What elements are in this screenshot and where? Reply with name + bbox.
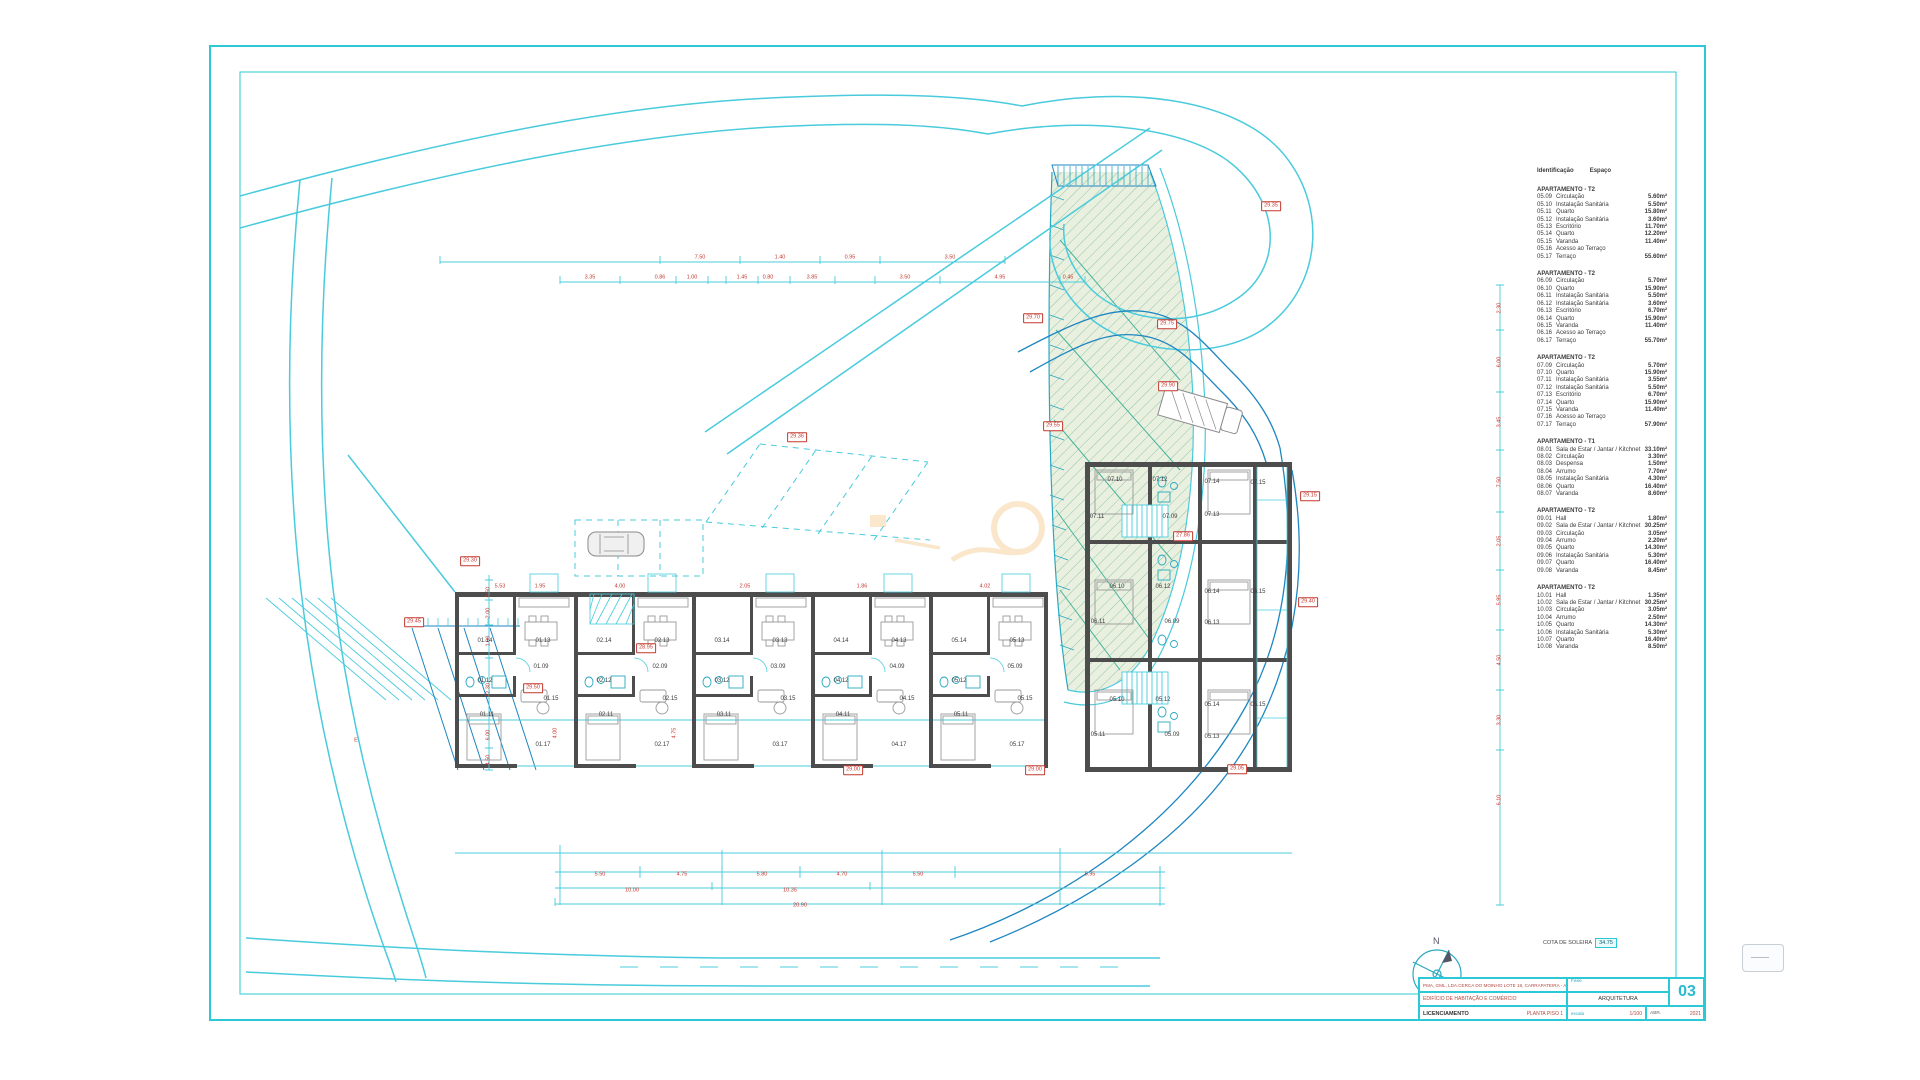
logo-watermark: [870, 504, 1042, 560]
legend-row: 09.08Varanda8.45m²: [1537, 568, 1667, 575]
dimension-value: 5.80: [757, 872, 768, 878]
room-label: 04.17: [891, 742, 906, 748]
dimension-value: 4.70: [837, 872, 848, 878]
elevation-badge: 29.90: [1158, 381, 1178, 391]
cota-de-soleira: COTA DE SOLEIRA 34.75: [1543, 938, 1617, 948]
room-label: 05.14: [951, 638, 966, 644]
legend-section: APARTAMENTO - T210.01Hall1.35m²10.02Sala…: [1537, 585, 1667, 652]
legend-row: 08.06Quarto16.40m²: [1537, 484, 1667, 491]
dimension-value: 3.50: [900, 275, 911, 281]
legend-row: 09.02Sala de Estar / Jantar / Kitchnet30…: [1537, 523, 1667, 530]
legend-row: 09.03Circulação3.05m²: [1537, 531, 1667, 538]
legend-section: APARTAMENTO - T209.01Hall1.80m²09.02Sala…: [1537, 508, 1667, 575]
legend-row: 05.11Quarto15.80m²: [1537, 209, 1667, 216]
dimension-value: 6.10: [1497, 795, 1503, 806]
legend-row: 05.14Quarto12.20m²: [1537, 231, 1667, 238]
legend-section-title: APARTAMENTO - T2: [1537, 585, 1667, 592]
dimension-value: 3.35: [585, 275, 596, 281]
room-label: 06.09: [1164, 619, 1179, 625]
room-schedule-legend: Identificação Espaço APARTAMENTO - T205.…: [1537, 168, 1667, 662]
dimension-value: 4.50: [486, 755, 492, 766]
legend-header: Identificação Espaço: [1537, 168, 1667, 174]
legend-row: 06.16Acesso ao Terraço: [1537, 330, 1667, 337]
legend-row: 08.07Varanda8.60m²: [1537, 491, 1667, 498]
room-label: 01.15: [543, 696, 558, 702]
dimension-value: 2.05: [740, 584, 751, 590]
legend-row: 06.09Circulação5.70m²: [1537, 278, 1667, 285]
room-label: 07.15: [1250, 480, 1265, 486]
elevation-badge: 29.70: [1023, 313, 1043, 323]
drawing-name: PLANTA PISO 1: [1527, 1011, 1563, 1017]
legend-section: APARTAMENTO - T206.09Circulação5.70m²06.…: [1537, 271, 1667, 345]
elevation-badge: 29.00: [843, 765, 863, 775]
room-label: 06.10: [1109, 584, 1124, 590]
legend-row: 08.01Sala de Estar / Jantar / Kitchnet33…: [1537, 447, 1667, 454]
room-label: 06.13: [1204, 620, 1219, 626]
legend-row: 05.12Instalação Sanitária3.60m²: [1537, 217, 1667, 224]
fase-label: Fase: [1571, 979, 1582, 984]
room-label: 02.13: [654, 638, 669, 644]
elevation-badge: 27.86: [1173, 531, 1193, 541]
specialty: ARQUITETURA: [1598, 996, 1637, 1002]
room-label: 02.09: [652, 664, 667, 670]
elevation-badge: 29.05: [1227, 764, 1247, 774]
scale-value: 1/100: [1629, 1011, 1642, 1017]
room-label: 02.11: [599, 712, 614, 718]
room-label: 05.14: [1204, 702, 1219, 708]
room-label: 07.11: [1090, 514, 1105, 520]
cota-label: COTA DE SOLEIRA: [1543, 940, 1592, 946]
dimension-value: 5.53: [495, 584, 506, 590]
dimension-value: 7.50: [695, 255, 706, 261]
room-label: 03.11: [717, 712, 732, 718]
room-label: 05.13: [1204, 734, 1219, 740]
car-sedan: [588, 532, 644, 556]
room-label: 05.17: [1009, 742, 1024, 748]
room-label: 05.09: [1164, 732, 1179, 738]
room-label: 05.10: [1109, 697, 1124, 703]
dimension-lines: [440, 256, 1504, 906]
dimension-value: 2.00: [486, 608, 492, 619]
room-label: 01.11: [480, 712, 495, 718]
legend-row: 10.08Varanda8.50m²: [1537, 644, 1667, 651]
dimension-value: E: [354, 738, 358, 744]
room-label: 01.17: [535, 742, 550, 748]
legend-row: 07.13Escritório6.70m²: [1537, 392, 1667, 399]
elevation-badge: 29.75: [1157, 319, 1177, 329]
room-label: 02.15: [662, 696, 677, 702]
room-label: 03.14: [714, 638, 729, 644]
legend-row: 06.11Instalação Sanitária5.50m²: [1537, 293, 1667, 300]
dimension-value: 4.75: [677, 872, 688, 878]
elevation-badge: 29.50: [523, 683, 543, 693]
building-row-units: [455, 574, 1048, 768]
north-label: N: [1433, 936, 1440, 946]
room-label: 04.13: [891, 638, 906, 644]
elevation-badge: 29.40: [1298, 597, 1318, 607]
room-label: 04.12: [833, 678, 848, 684]
dimension-value: 1.45: [737, 275, 748, 281]
legend-section: APARTAMENTO - T108.01Sala de Estar / Jan…: [1537, 439, 1667, 498]
drawing-sheet: Identificação Espaço APARTAMENTO - T205.…: [0, 0, 1920, 1080]
legend-header-id: Identificação: [1537, 168, 1574, 174]
dimension-value: 5.95: [1497, 595, 1503, 606]
dimension-value: 3.85: [807, 275, 818, 281]
dimension-value: 1.86: [857, 584, 868, 590]
dimension-value: 1.40: [775, 255, 786, 261]
legend-row: 07.17Terraço57.90m²: [1537, 422, 1667, 429]
legend-row: 10.01Hall1.35m²: [1537, 593, 1667, 600]
date-month: ABR.: [1650, 1011, 1661, 1016]
dimension-value: 4.95: [995, 275, 1006, 281]
legend-row: 09.07Quarto16.40m²: [1537, 560, 1667, 567]
legend-row: 07.15Varanda11.40m²: [1537, 407, 1667, 414]
room-label: 04.09: [889, 664, 904, 670]
room-label: 06.14: [1204, 589, 1219, 595]
legend-row: 05.09Circulação5.60m²: [1537, 194, 1667, 201]
legend-section-title: APARTAMENTO - T1: [1537, 439, 1667, 446]
project-location: CERCA DO MOINHO LOTE 18, CARRAPATEIRA - …: [1458, 983, 1567, 988]
dimension-value: 1.00: [687, 275, 698, 281]
legend-row: 09.05Quarto14.30m²: [1537, 545, 1667, 552]
scale-box: [1742, 944, 1784, 972]
legend-row: 07.14Quarto15.90m²: [1537, 400, 1667, 407]
room-label: 05.11: [1091, 732, 1106, 738]
dimension-value: 0.86: [655, 275, 666, 281]
dimension-value: 4.75: [672, 728, 678, 739]
dimension-value: 5.50: [913, 872, 924, 878]
legend-row: 06.12Instalação Sanitária3.60m²: [1537, 301, 1667, 308]
room-label: 05.12: [1155, 697, 1170, 703]
dimension-value: 12.30: [486, 683, 492, 697]
legend-row: 10.05Quarto14.30m²: [1537, 622, 1667, 629]
elevation-badge: 29.30: [460, 556, 480, 566]
legend-row: 10.03Circulação3.05m²: [1537, 607, 1667, 614]
dimension-value: 6.00: [1497, 357, 1503, 368]
room-label: 04.11: [836, 712, 851, 718]
room-label: 06.11: [1091, 619, 1106, 625]
room-label: 05.12: [951, 678, 966, 684]
legend-section-title: APARTAMENTO - T2: [1537, 508, 1667, 515]
elevation-badge: 28.95: [636, 643, 656, 653]
legend-row: 08.05Instalação Sanitária4.30m²: [1537, 476, 1667, 483]
legend-row: 05.16Acesso ao Terraço: [1537, 246, 1667, 253]
dimension-value: 2.05: [1497, 536, 1503, 547]
date-year: 2021: [1690, 1011, 1701, 1017]
elevation-badge: 29.15: [1300, 491, 1320, 501]
legend-row: 10.04Arrumo2.50m²: [1537, 615, 1667, 622]
sheet-frame: [210, 46, 1705, 1020]
room-label: 05.13: [1009, 638, 1024, 644]
dimension-value: 0.95: [845, 255, 856, 261]
scale-label: escala: [1571, 1011, 1584, 1016]
dimension-value: 1.90: [486, 636, 492, 647]
dimension-value: 20.90: [793, 903, 807, 909]
dimension-value: 5.50: [595, 872, 606, 878]
dimension-value: 4.02: [980, 584, 991, 590]
legend-row: 06.17Terraço55.70m²: [1537, 338, 1667, 345]
room-label: 05.15: [1250, 702, 1265, 708]
dimension-value: 0.45: [1063, 275, 1074, 281]
room-label: 02.14: [596, 638, 611, 644]
room-label: 03.12: [714, 678, 729, 684]
room-label: 03.13: [772, 638, 787, 644]
room-label: 07.09: [1162, 514, 1177, 520]
dimension-value: 3.30: [1497, 715, 1503, 726]
room-label: 02.17: [654, 742, 669, 748]
legend-row: 06.15Varanda11.40m²: [1537, 323, 1667, 330]
legend-header-space: Espaço: [1590, 168, 1611, 174]
room-label: 01.09: [533, 664, 548, 670]
room-label: 07.10: [1107, 477, 1122, 483]
dimension-value: 2.30: [1497, 303, 1503, 314]
room-label: 07.14: [1204, 479, 1219, 485]
phase: LICENCIAMENTO: [1423, 1011, 1469, 1017]
dimension-value: 1.95: [535, 584, 546, 590]
dimension-value: 4.00: [615, 584, 626, 590]
room-label: 03.17: [772, 742, 787, 748]
legend-row: 05.15Varanda11.40m²: [1537, 239, 1667, 246]
legend-row: 07.09Circulação5.70m²: [1537, 363, 1667, 370]
dimension-value: 7.50: [1497, 477, 1503, 488]
elevation-badge: 29.00: [1025, 765, 1045, 775]
room-label: 05.09: [1007, 664, 1022, 670]
legend-row: 06.13Escritório6.70m²: [1537, 308, 1667, 315]
room-label: 06.12: [1155, 584, 1170, 590]
legend-row: 05.17Terraço55.60m²: [1537, 254, 1667, 261]
dimension-value: 0.50: [486, 587, 492, 598]
legend-section: APARTAMENTO - T207.09Circulação5.70m²07.…: [1537, 355, 1667, 429]
dimension-value: 10.35: [783, 888, 797, 894]
room-label: 05.15: [1017, 696, 1032, 702]
room-label: 03.09: [770, 664, 785, 670]
elevation-badge: 29.35: [1261, 201, 1281, 211]
room-label: 01.13: [535, 638, 550, 644]
legend-row: 06.14Quarto15.90m²: [1537, 316, 1667, 323]
room-label: 06.15: [1250, 589, 1265, 595]
room-label: 04.15: [899, 696, 914, 702]
project-title: EDIFÍCIO DE HABITAÇÃO E COMÉRCIO: [1423, 996, 1517, 1002]
elevation-badge: 29.45: [404, 617, 424, 627]
dimension-value: 4.00: [553, 728, 559, 739]
dimension-value: 3.45: [1497, 417, 1503, 428]
dimension-value: 0.80: [763, 275, 774, 281]
room-label: 03.15: [780, 696, 795, 702]
sheet-number: 03: [1669, 978, 1705, 1006]
dimension-value: 10.00: [625, 888, 639, 894]
title-block: PMA, GML, LDA. CERCA DO MOINHO LOTE 18, …: [1418, 977, 1704, 1020]
dimension-value: 5.95: [1085, 872, 1096, 878]
legend-section-title: APARTAMENTO - T2: [1537, 355, 1667, 362]
room-label: 04.14: [833, 638, 848, 644]
dimension-value: 4.50: [1497, 655, 1503, 666]
legend-row: 10.06Instalação Sanitária5.30m²: [1537, 630, 1667, 637]
dimension-value: 3.50: [945, 255, 956, 261]
company-name: PMA, GML, LDA.: [1423, 983, 1458, 988]
room-label: 05.11: [954, 712, 969, 718]
legend-row: 08.03Despensa1.50m²: [1537, 461, 1667, 468]
dimension-value: 6.00: [486, 730, 492, 741]
legend-row: 07.16Acesso ao Terraço: [1537, 414, 1667, 421]
room-label: 07.12: [1152, 477, 1167, 483]
cota-value: 34.75: [1595, 938, 1617, 948]
legend-row: 07.11Instalação Sanitária3.55m²: [1537, 377, 1667, 384]
elevation-badge: 29.55: [1043, 421, 1063, 431]
legend-section: APARTAMENTO - T205.09Circulação5.60m²05.…: [1537, 187, 1667, 261]
elevation-badge: 29.36: [787, 432, 807, 442]
room-label: 02.12: [596, 678, 611, 684]
room-label: 07.13: [1204, 512, 1219, 518]
